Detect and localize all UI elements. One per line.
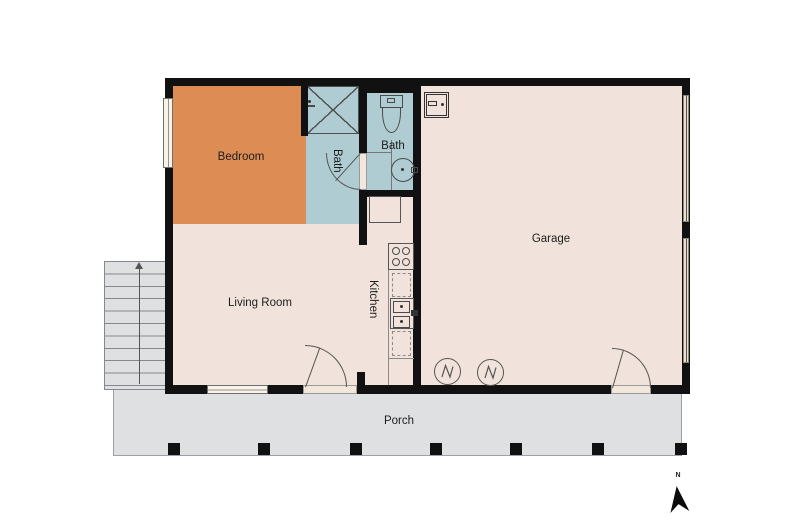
- window-left: [163, 98, 173, 168]
- stairs-direction-line: [139, 266, 140, 384]
- porch-post: [258, 443, 270, 455]
- stove-burner-icon: [392, 247, 400, 255]
- wall-bath-wc-top: [367, 78, 413, 93]
- bedroom-label: Bedroom: [191, 151, 291, 163]
- porch-post: [675, 443, 687, 455]
- wall-bath-divider-upper: [359, 80, 367, 153]
- living-room-label: Living Room: [200, 297, 320, 309]
- porch-post: [510, 443, 522, 455]
- floor-plan: Bedroom Bath Bath Kitchen Living Room Ga…: [0, 0, 800, 530]
- window-right-upper: [683, 95, 689, 222]
- electrical-panel-switch-icon: [428, 101, 437, 106]
- porch-label: Porch: [359, 415, 439, 427]
- porch-post: [168, 443, 180, 455]
- bathroom-sink-drain-icon: [401, 168, 404, 171]
- bath-counter-line-h: [367, 152, 391, 153]
- wall-bath-divider-lower: [359, 190, 367, 245]
- window-bottom: [207, 385, 268, 394]
- washer-icon: [434, 358, 461, 385]
- stairs-up-arrow-icon: [135, 262, 143, 269]
- kitchen-sink-drain-icon: [400, 305, 403, 308]
- refrigerator-icon: [369, 196, 401, 223]
- toilet-flush-icon: [387, 98, 395, 103]
- kitchen-sink-tap-icon: [411, 310, 418, 316]
- bath-shower-label: Bath: [331, 139, 343, 183]
- wall-kitchen-stub: [357, 372, 365, 390]
- window-right-lower: [683, 238, 689, 363]
- stove-burner-icon: [392, 258, 400, 266]
- shower-valve-icon: [308, 100, 311, 103]
- electrical-panel-icon: [424, 92, 449, 118]
- stove-burner-icon: [402, 247, 410, 255]
- shower-icon: [307, 86, 359, 134]
- cabinet-icon: [392, 331, 411, 356]
- north-label: N: [667, 472, 689, 479]
- bathroom-sink-tap-icon: [411, 167, 418, 173]
- kitchen-sink-drain-icon: [400, 320, 403, 323]
- wall-top: [165, 78, 690, 86]
- stairs: [104, 261, 172, 390]
- porch-post: [350, 443, 362, 455]
- counter-end-line: [388, 358, 414, 359]
- wall-garage-left: [413, 80, 421, 394]
- dryer-icon: [477, 359, 504, 386]
- porch-post: [430, 443, 442, 455]
- garage-label: Garage: [511, 233, 591, 245]
- bath-wc-label: Bath: [373, 140, 413, 152]
- wall-bedroom-bath: [301, 80, 308, 136]
- counter-edge-line: [388, 270, 389, 385]
- kitchen-label: Kitchen: [367, 274, 379, 324]
- electrical-panel-dot: [441, 103, 444, 106]
- dishwasher-icon: [392, 273, 411, 297]
- porch-post: [592, 443, 604, 455]
- north-arrow-icon: [666, 485, 692, 513]
- stove-burner-icon: [402, 258, 410, 266]
- stove-icon: [388, 243, 414, 270]
